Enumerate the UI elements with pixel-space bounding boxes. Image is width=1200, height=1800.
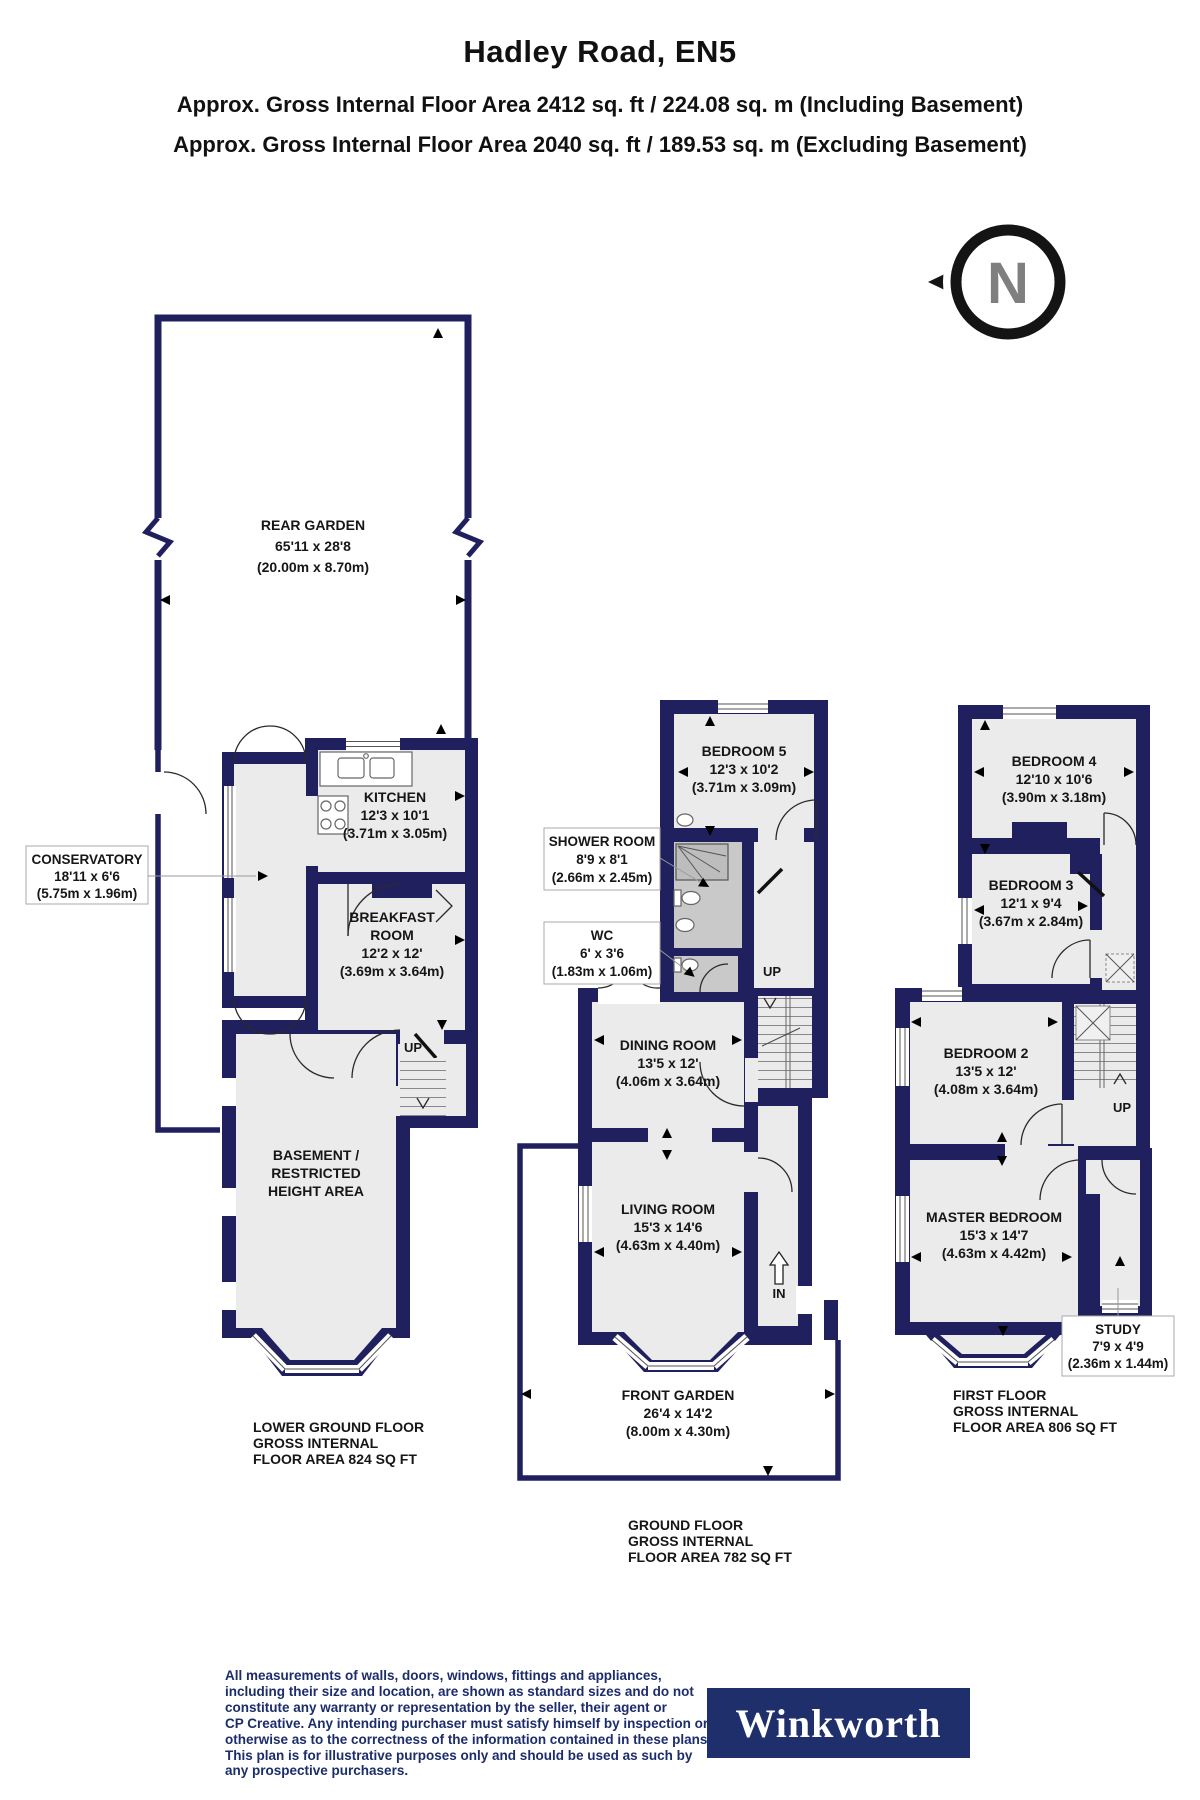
wc-dims-ft: 6' x 3'6 <box>580 946 624 961</box>
disclaimer-line-1: All measurements of walls, doors, window… <box>225 1668 725 1684</box>
kitchen-dims-ft: 12'3 x 10'1 <box>361 807 430 823</box>
shower-icon <box>676 844 728 880</box>
kitchen-sink-icon <box>320 752 412 786</box>
ground-floor-up-label: UP <box>763 964 781 979</box>
disclaimer-line-5: otherwise as to the correctness of the i… <box>225 1732 725 1748</box>
study-dims-ft: 7'9 x 4'9 <box>1092 1339 1143 1354</box>
conservatory-dims-m: (5.75m x 1.96m) <box>37 886 138 901</box>
lower-ground-stairs <box>400 1058 446 1116</box>
breakfast-room-label-2: ROOM <box>370 927 414 943</box>
bedroom2-dims-ft: 13'5 x 12' <box>955 1063 1016 1079</box>
bedroom4-dims-m: (3.90m x 3.18m) <box>1002 789 1106 805</box>
dining-room-label: DINING ROOM <box>620 1037 716 1053</box>
entrance-in-label: IN <box>773 1286 786 1301</box>
living-room-dims-m: (4.63m x 4.40m) <box>616 1237 720 1253</box>
bedroom5-dims-ft: 12'3 x 10'2 <box>710 761 779 777</box>
wc-label: WC <box>591 928 614 943</box>
first-floor-caption-1: FIRST FLOOR <box>953 1387 1046 1403</box>
bedroom2-label: BEDROOM 2 <box>944 1045 1029 1061</box>
study-label: STUDY <box>1095 1322 1141 1337</box>
ground-floor-stairs <box>758 996 812 1088</box>
basement-label-2: RESTRICTED <box>271 1165 360 1181</box>
lower-ground-caption-2: GROSS INTERNAL <box>253 1435 379 1451</box>
bedroom2-dims-m: (4.08m x 3.64m) <box>934 1081 1038 1097</box>
bedroom3-dims-ft: 12'1 x 9'4 <box>1000 895 1061 911</box>
basement-label-1: BASEMENT / <box>273 1147 359 1163</box>
floorplan-canvas: N <box>0 0 1200 1800</box>
loft-hatch-icon <box>1106 954 1134 982</box>
ground-floor-plan: SHOWER ROOM 8'9 x 8'1 (2.66m x 2.45m) WC… <box>520 700 838 1565</box>
wc-dims-m: (1.83m x 1.06m) <box>552 964 653 979</box>
floorplan-page: Hadley Road, EN5 Approx. Gross Internal … <box>0 0 1200 1800</box>
dining-room-dims-ft: 13'5 x 12' <box>637 1055 698 1071</box>
breakfast-room-label-1: BREAKFAST <box>349 909 435 925</box>
ground-floor-caption-3: FLOOR AREA 782 SQ FT <box>628 1549 792 1565</box>
front-garden-label: FRONT GARDEN <box>622 1387 735 1403</box>
kitchen-dims-m: (3.71m x 3.05m) <box>343 825 447 841</box>
north-compass: N <box>928 222 1068 342</box>
master-bedroom-label: MASTER BEDROOM <box>926 1209 1062 1225</box>
lower-ground-up-label: UP <box>404 1040 422 1055</box>
shower-room-label: SHOWER ROOM <box>549 834 656 849</box>
bedroom4-dims-ft: 12'10 x 10'6 <box>1016 771 1093 787</box>
disclaimer-text: All measurements of walls, doors, window… <box>225 1668 725 1779</box>
bedroom5-label: BEDROOM 5 <box>702 743 787 759</box>
lower-ground-plan: CONSERVATORY 18'11 x 6'6 (5.75m x 1.96m)… <box>26 318 480 1467</box>
bedroom3-dims-m: (3.67m x 2.84m) <box>979 913 1083 929</box>
disclaimer-line-6: This plan is for illustrative purposes o… <box>225 1748 725 1764</box>
breakfast-room-dims-ft: 12'2 x 12' <box>361 945 422 961</box>
shower-room-dims-m: (2.66m x 2.45m) <box>552 870 653 885</box>
living-room-dims-ft: 15'3 x 14'6 <box>634 1219 703 1235</box>
first-floor-caption-3: FLOOR AREA 806 SQ FT <box>953 1419 1117 1435</box>
first-floor-stairs <box>1074 1004 1136 1088</box>
conservatory-label: CONSERVATORY <box>31 852 142 867</box>
first-floor-up-label: UP <box>1113 1100 1131 1115</box>
front-garden-dims-m: (8.00m x 4.30m) <box>626 1423 730 1439</box>
basement-label-3: HEIGHT AREA <box>268 1183 364 1199</box>
master-bedroom-dims-m: (4.63m x 4.42m) <box>942 1245 1046 1261</box>
shower-room-dims-ft: 8'9 x 8'1 <box>576 852 628 867</box>
compass-north-label: N <box>987 251 1029 316</box>
bedroom5-basin-icon <box>677 814 693 826</box>
disclaimer-line-7: any prospective purchasers. <box>225 1763 725 1779</box>
living-room-label: LIVING ROOM <box>621 1201 715 1217</box>
kitchen-label: KITCHEN <box>364 789 426 805</box>
ground-floor-caption-2: GROSS INTERNAL <box>628 1533 754 1549</box>
lower-ground-caption-3: FLOOR AREA 824 SQ FT <box>253 1451 417 1467</box>
bedroom3-label: BEDROOM 3 <box>989 877 1074 893</box>
shower-room-toilet-icon <box>674 890 700 906</box>
disclaimer-line-2: including their size and location, are s… <box>225 1684 725 1700</box>
shower-room-basin-icon <box>676 919 694 932</box>
disclaimer-line-3: constitute any warranty or representatio… <box>225 1700 725 1716</box>
conservatory-dims-ft: 18'11 x 6'6 <box>54 869 120 884</box>
first-floor-caption-2: GROSS INTERNAL <box>953 1403 1079 1419</box>
bedroom4-label: BEDROOM 4 <box>1012 753 1097 769</box>
breakfast-room-dims-m: (3.69m x 3.64m) <box>340 963 444 979</box>
dining-room-dims-m: (4.06m x 3.64m) <box>616 1073 720 1089</box>
winkworth-logo-text: Winkworth <box>735 1700 941 1747</box>
lower-ground-caption-1: LOWER GROUND FLOOR <box>253 1419 424 1435</box>
first-floor-plan: STUDY 7'9 x 4'9 (2.36m x 1.44m) BEDROOM … <box>895 704 1174 1435</box>
study-dims-m: (2.36m x 1.44m) <box>1068 1356 1169 1371</box>
rear-garden-label: REAR GARDEN <box>261 517 365 533</box>
bedroom5-dims-m: (3.71m x 3.09m) <box>692 779 796 795</box>
front-garden-dims-ft: 26'4 x 14'2 <box>644 1405 713 1421</box>
rear-garden-dims-ft: 65'11 x 28'8 <box>275 538 351 554</box>
disclaimer-line-4: CP Creative. Any intending purchaser mus… <box>225 1716 725 1732</box>
chimney-breast <box>372 872 432 898</box>
winkworth-logo: Winkworth <box>707 1688 970 1758</box>
rear-garden-dims-m: (20.00m x 8.70m) <box>257 559 369 575</box>
ground-floor-caption-1: GROUND FLOOR <box>628 1517 743 1533</box>
master-bedroom-dims-ft: 15'3 x 14'7 <box>960 1227 1029 1243</box>
